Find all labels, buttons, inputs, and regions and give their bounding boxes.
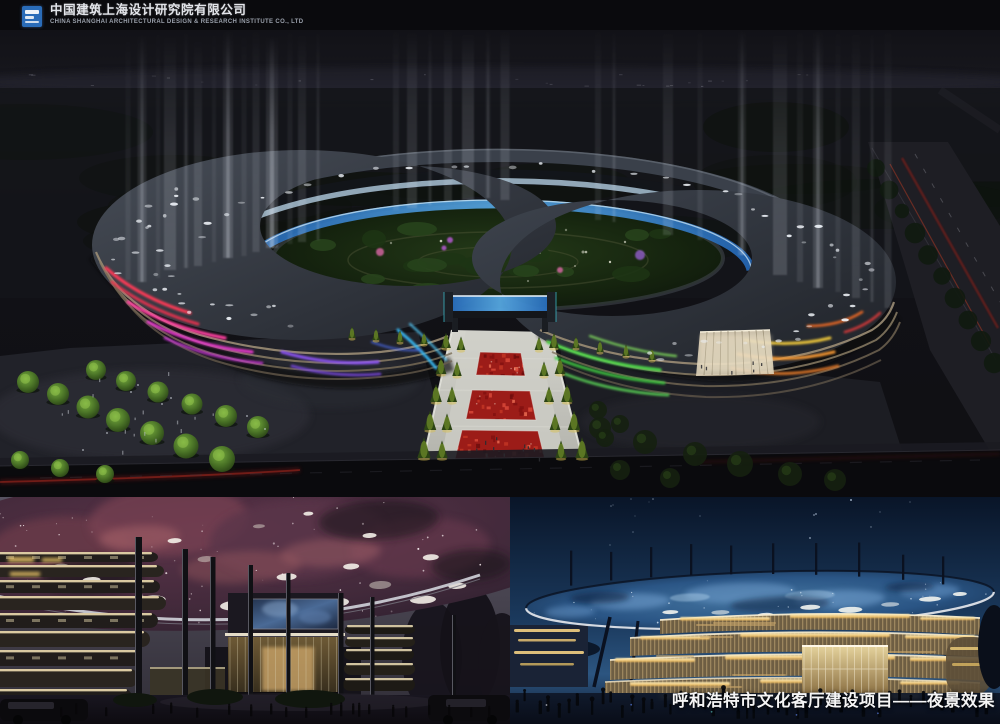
car-left (0, 699, 88, 724)
aerial-night-render (0, 30, 1000, 497)
company-name-en: CHINA SHANGHAI ARCHITECTURAL DESIGN & RE… (50, 18, 303, 26)
car-right (428, 695, 510, 724)
company-titles: 中国建筑上海设计研究院有限公司 CHINA SHANGHAI ARCHITECT… (50, 3, 303, 26)
left-annex-building (510, 625, 588, 687)
header-bar: 中国建筑上海设计研究院有限公司 CHINA SHANGHAI ARCHITECT… (0, 0, 1000, 30)
company-name-cn: 中国建筑上海设计研究院有限公司 (50, 3, 303, 17)
presentation-board: 中国建筑上海设计研究院有限公司 CHINA SHANGHAI ARCHITECT… (0, 0, 1000, 724)
canopy-night-render (0, 497, 510, 724)
east-wing-lobby (696, 330, 774, 376)
project-caption: 呼和浩特市文化客厅建设项目——夜景效果 (672, 687, 995, 711)
company-logo-icon (22, 6, 42, 27)
facade-night-render: 呼和浩特市文化客厅建设项目——夜景效果 (510, 497, 1000, 724)
